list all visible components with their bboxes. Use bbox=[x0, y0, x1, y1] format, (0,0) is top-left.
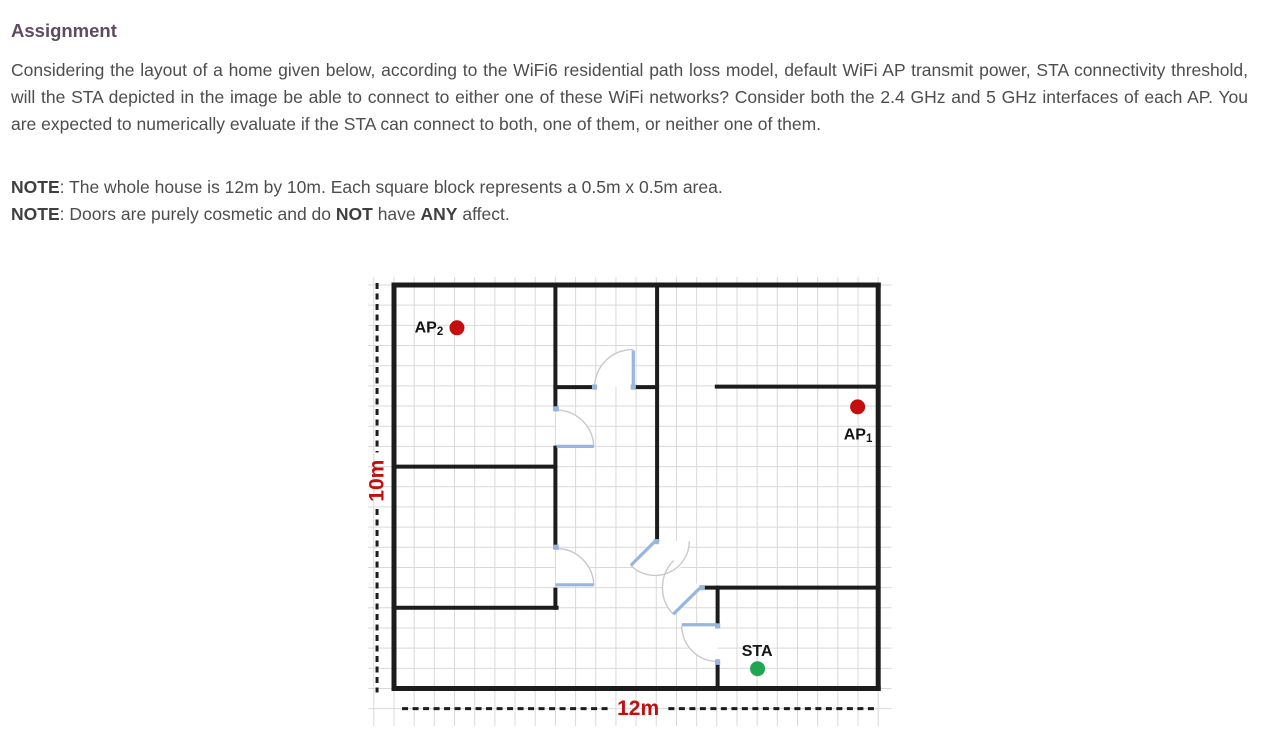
door-sta-room-tick bbox=[715, 660, 720, 665]
door-hall-center-tick bbox=[654, 539, 659, 544]
door-hall-lower-tick bbox=[700, 585, 705, 590]
door-top-hall-tick bbox=[592, 384, 597, 389]
sta-label: STA bbox=[742, 643, 773, 660]
note-text: : The whole house is 12m by 10m. Each sq… bbox=[60, 177, 723, 197]
ap1-dot bbox=[850, 399, 865, 414]
dimension-label-width: 12m bbox=[617, 697, 659, 720]
note-bold-text: NOTE bbox=[11, 204, 60, 224]
dimension-label-height: 10m bbox=[366, 460, 389, 502]
note-bold-text: ANY bbox=[421, 204, 458, 224]
door-sta-room-tick bbox=[715, 623, 720, 628]
note-bold-text: NOT bbox=[336, 204, 373, 224]
note-text: : Doors are purely cosmetic and do bbox=[60, 204, 336, 224]
assignment-page: { "doc": { "heading": "Assignment", "par… bbox=[0, 0, 1271, 746]
floorplan-svg: 10m12mAP2AP1STA bbox=[352, 270, 908, 736]
ap2-label: AP2 bbox=[415, 320, 444, 339]
note-text: affect. bbox=[457, 204, 509, 224]
note-line: NOTE: Doors are purely cosmetic and do N… bbox=[11, 201, 1248, 228]
sta-dot bbox=[750, 661, 765, 676]
note-text: have bbox=[373, 204, 421, 224]
door-left-upper-tick bbox=[554, 406, 559, 411]
ap1-label: AP1 bbox=[844, 427, 873, 446]
note-bold-text: NOTE bbox=[11, 177, 60, 197]
document-body: Assignment Considering the layout of a h… bbox=[11, 21, 1248, 228]
assignment-paragraph: Considering the layout of a home given b… bbox=[11, 57, 1248, 138]
door-top-hall-tick bbox=[631, 384, 636, 389]
ap2-dot bbox=[449, 320, 464, 335]
assignment-heading: Assignment bbox=[11, 21, 1248, 40]
note-line: NOTE: The whole house is 12m by 10m. Eac… bbox=[11, 174, 1248, 201]
door-left-lower-tick bbox=[554, 545, 559, 550]
notes: NOTE: The whole house is 12m by 10m. Eac… bbox=[11, 174, 1248, 228]
